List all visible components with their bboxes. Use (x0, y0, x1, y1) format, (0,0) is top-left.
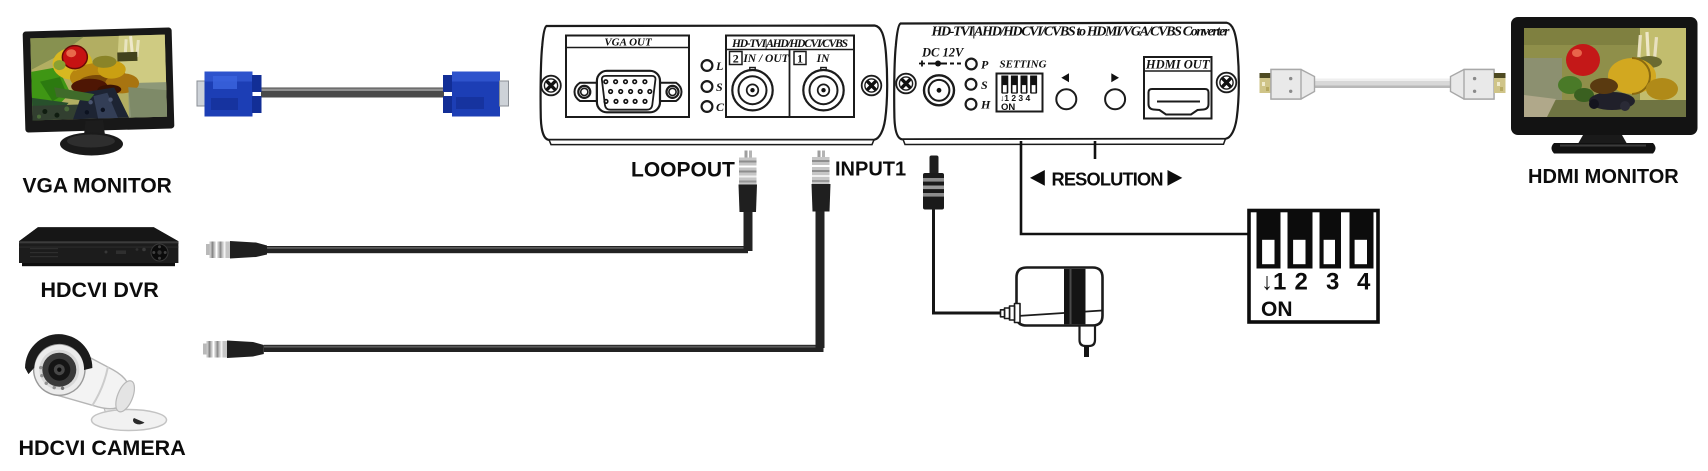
svg-text:H: H (980, 98, 991, 112)
svg-text:ON: ON (1261, 298, 1293, 321)
svg-text:4: 4 (1357, 269, 1371, 296)
svg-text:HDCVI CAMERA: HDCVI CAMERA (19, 436, 186, 460)
svg-text:HDCVI DVR: HDCVI DVR (41, 278, 160, 302)
svg-text:DC 12V: DC 12V (921, 46, 965, 60)
svg-text:INPUT1: INPUT1 (835, 159, 906, 181)
svg-text:C: C (716, 100, 725, 114)
svg-text:P: P (981, 58, 989, 72)
svg-text:↓1: ↓1 (1261, 269, 1286, 296)
svg-text:1: 1 (797, 52, 803, 66)
svg-text:HDMI OUT: HDMI OUT (1145, 58, 1211, 72)
svg-text:S: S (981, 78, 988, 92)
svg-text:2: 2 (1295, 269, 1308, 296)
svg-text:HD-TVI|AHD/HDCVI/CVBS to HDMI/: HD-TVI|AHD/HDCVI/CVBS to HDMI/VGA/CVBS C… (931, 25, 1231, 40)
svg-text:S: S (716, 80, 723, 94)
svg-text:VGA MONITOR: VGA MONITOR (23, 175, 172, 198)
svg-text:ON: ON (1001, 102, 1015, 113)
svg-text:LOOPOUT: LOOPOUT (631, 159, 735, 182)
svg-text:IN / OUT: IN / OUT (742, 53, 789, 65)
svg-text:3: 3 (1326, 269, 1339, 296)
svg-text:IN: IN (816, 53, 830, 65)
svg-text:RESOLUTION: RESOLUTION (1052, 169, 1164, 189)
svg-text:2: 2 (733, 52, 739, 66)
svg-text:HD-TVI|AHD/HDCVI/CVBS: HD-TVI|AHD/HDCVI/CVBS (731, 38, 848, 50)
svg-text:VGA OUT: VGA OUT (604, 37, 653, 49)
svg-text:HDMI MONITOR: HDMI MONITOR (1528, 166, 1679, 188)
svg-text:L: L (715, 59, 723, 73)
svg-text:SETTING: SETTING (1000, 59, 1047, 71)
